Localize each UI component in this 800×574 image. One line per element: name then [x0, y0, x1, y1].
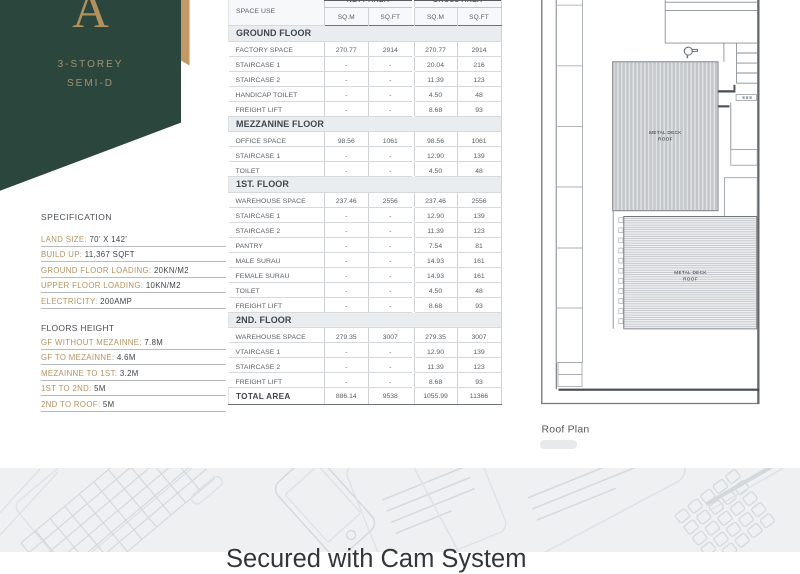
svg-text:METAL DECK: METAL DECK — [649, 130, 682, 135]
svg-text:Roof Plan: Roof Plan — [542, 424, 590, 436]
svg-text:ROOF: ROOF — [683, 277, 698, 282]
svg-text:METAL DECK: METAL DECK — [674, 270, 707, 275]
svg-text:ROOF: ROOF — [658, 137, 673, 142]
